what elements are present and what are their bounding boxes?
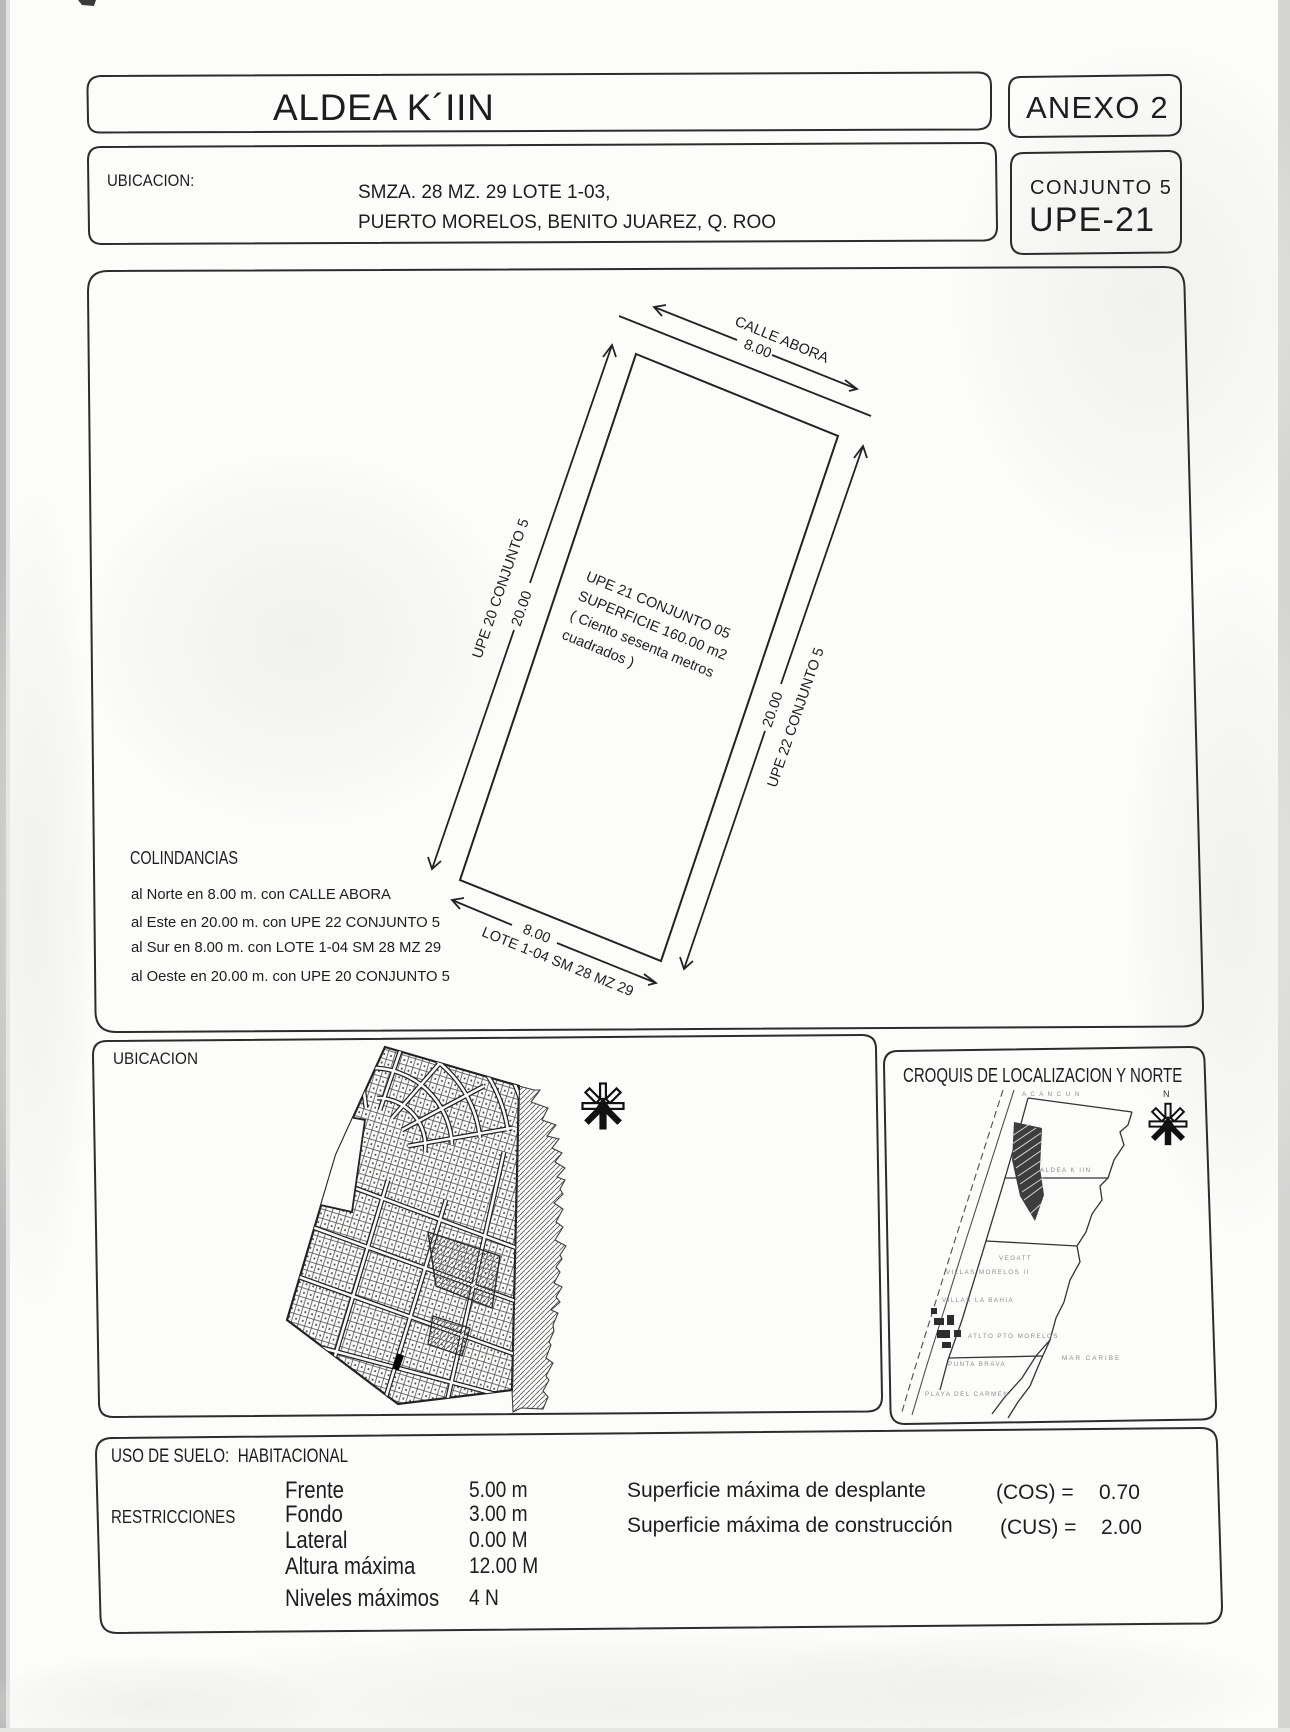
svg-text:PUNTA BRAVA: PUNTA BRAVA bbox=[948, 1361, 1006, 1368]
svg-text:LOTE 1-04 SM 28 MZ 29: LOTE 1-04 SM 28 MZ 29 bbox=[479, 925, 635, 1001]
svg-text:VEGATT: VEGATT bbox=[999, 1255, 1032, 1262]
svg-text:MAR CARIBE: MAR CARIBE bbox=[1062, 1355, 1121, 1362]
svg-text:ALDEA K IIN: ALDEA K IIN bbox=[1040, 1167, 1091, 1174]
svg-text:A C A N C U N: A C A N C U N bbox=[1022, 1091, 1081, 1098]
svg-text:N: N bbox=[1163, 1089, 1170, 1099]
svg-text:20.00: 20.00 bbox=[760, 690, 787, 730]
svg-text:VILLAS LA BAHIA: VILLAS LA BAHIA bbox=[942, 1297, 1014, 1304]
svg-text:ATLTO PTO MORELOS: ATLTO PTO MORELOS bbox=[968, 1333, 1059, 1340]
svg-text:PLAYA DEL CARMEN: PLAYA DEL CARMEN bbox=[925, 1391, 1009, 1398]
svg-text:VILLAS MORELOS II: VILLAS MORELOS II bbox=[946, 1269, 1030, 1276]
